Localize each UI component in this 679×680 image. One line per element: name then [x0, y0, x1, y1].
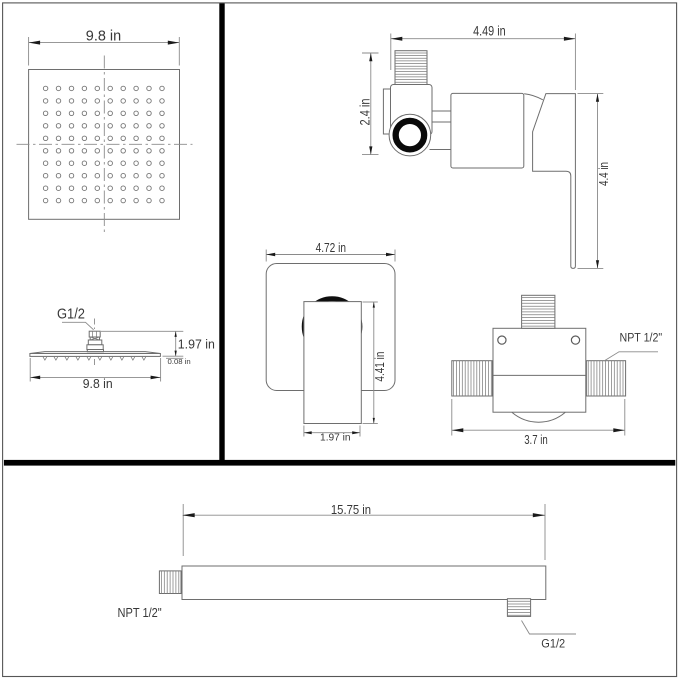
svg-text:1.97 in: 1.97 in [178, 337, 215, 352]
svg-text:0.08 in: 0.08 in [168, 357, 191, 366]
svg-text:G1/2: G1/2 [541, 636, 565, 650]
svg-text:2.4 in: 2.4 in [357, 99, 372, 126]
svg-text:1.97 in: 1.97 in [320, 431, 351, 443]
svg-text:G1/2: G1/2 [57, 306, 85, 323]
svg-text:4.4 in: 4.4 in [597, 162, 611, 186]
svg-text:9.8 in: 9.8 in [86, 27, 121, 44]
svg-text:4.72 in: 4.72 in [316, 240, 346, 255]
svg-text:NPT 1/2": NPT 1/2" [118, 606, 162, 620]
svg-text:4.49 in: 4.49 in [473, 23, 506, 38]
svg-text:4.41 in: 4.41 in [373, 352, 387, 382]
svg-text:15.75 in: 15.75 in [331, 502, 371, 517]
svg-text:3.7 in: 3.7 in [524, 433, 548, 447]
svg-text:NPT 1/2": NPT 1/2" [620, 332, 663, 344]
svg-text:9.8 in: 9.8 in [83, 377, 113, 391]
